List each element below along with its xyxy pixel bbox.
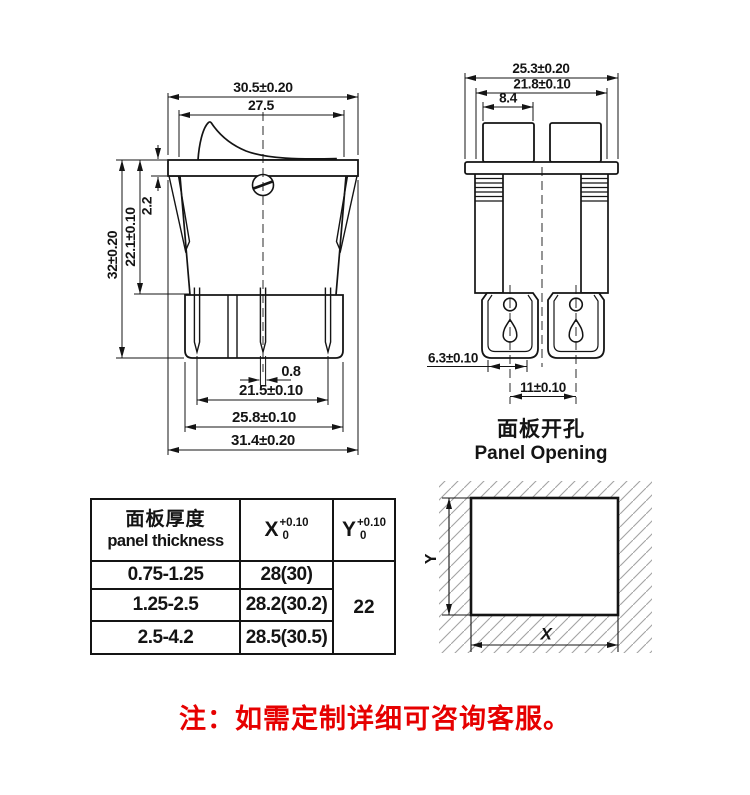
panel-x-label: X: [539, 625, 553, 644]
rocker-switch-dimension-drawing: { "front_view": { "dims": { "top_width":…: [0, 0, 750, 795]
panel-opening-caption-en: Panel Opening: [425, 444, 657, 465]
x-lower-tolerance: 0: [279, 530, 288, 543]
header-panel-thickness-cn: 面板厚度: [92, 509, 239, 532]
side-centerlines: [510, 167, 576, 404]
header-panel-thickness-en: panel thickness: [92, 532, 239, 551]
x-value-1: 28(30): [240, 561, 333, 589]
customization-note: 注：如需定制详细可咨询客服。: [0, 697, 750, 736]
mounting-clip-left: [169, 176, 190, 251]
front-switch-outline: [168, 112, 358, 372]
dim-terminal-spacing: 11±0.10: [520, 380, 566, 395]
dim-body-depth: 22.1±0.10: [122, 207, 138, 267]
dim-top-width: 30.5±0.20: [233, 79, 293, 95]
dim-base-width: 25.8±0.10: [232, 409, 296, 426]
dim-side-inner-width: 21.8±0.10: [513, 77, 570, 92]
y-lower-tolerance: 0: [357, 530, 366, 543]
panel-y-label: Y: [425, 553, 440, 565]
front-view-drawing: 30.5±0.20 27.5 32±0.20 22.1±0.10 2.2 0.8…: [95, 60, 385, 460]
dim-rocker-width: 27.5: [248, 97, 275, 113]
panel-opening-caption-cn: 面板开孔: [425, 418, 657, 441]
dim-overall-width: 31.4±0.20: [231, 432, 295, 449]
x-value-3: 28.5(30.5): [240, 621, 333, 654]
dim-side-top-width: 25.3±0.20: [512, 61, 569, 76]
x-upper-tolerance: +0.10: [279, 517, 308, 530]
dim-pin-thickness: 0.8: [281, 364, 300, 380]
mounting-clip-right: [337, 176, 358, 251]
side-flange: [465, 162, 618, 174]
dim-total-depth: 32±0.20: [104, 230, 120, 279]
thickness-range-1: 0.75-1.25: [91, 561, 240, 589]
panel-thickness-table: 面板厚度 panel thickness X+0.100 Y+0.100 0.7…: [90, 498, 396, 655]
header-panel-thickness: 面板厚度 panel thickness: [91, 499, 240, 561]
dim-flange-thickness: 2.2: [139, 196, 155, 215]
panel-opening-diagram: Y X: [425, 475, 660, 665]
header-y-dimension: Y+0.100: [333, 499, 395, 561]
button-left: [483, 123, 534, 162]
y-upper-tolerance: +0.10: [357, 517, 386, 530]
dim-button-width: 8.4: [499, 91, 518, 106]
thickness-range-2: 1.25-2.5: [91, 589, 240, 621]
panel-cutout-rect: [471, 498, 618, 615]
table-row: 0.75-1.25 28(30) 22: [91, 561, 395, 589]
button-right: [550, 123, 601, 162]
rocker-actuator: [198, 122, 336, 160]
dim-terminal-width: 6.3±0.10: [428, 351, 478, 366]
leg-ribs: [475, 179, 608, 202]
thickness-range-3: 2.5-4.2: [91, 621, 240, 654]
side-view-drawing: 25.3±0.20 21.8±0.10 8.4 6.3±0.10 11±0.10: [425, 55, 650, 410]
x-value-2: 28.2(30.2): [240, 589, 333, 621]
header-x-dimension: X+0.100: [240, 499, 333, 561]
dim-pin-spacing: 21.5±0.10: [239, 382, 303, 399]
y-value: 22: [333, 561, 395, 654]
